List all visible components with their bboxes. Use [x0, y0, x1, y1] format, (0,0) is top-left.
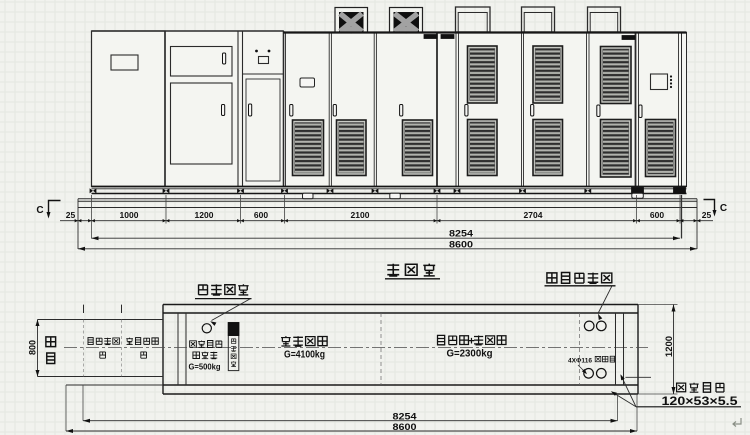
svg-text:8600: 8600: [393, 422, 417, 433]
svg-text:G=500kg: G=500kg: [189, 362, 221, 372]
svg-text:C: C: [36, 205, 43, 216]
svg-text:25: 25: [66, 210, 76, 220]
svg-text:8254: 8254: [393, 411, 418, 422]
svg-text:+: +: [468, 335, 474, 347]
svg-text:800: 800: [28, 340, 38, 355]
svg-text:2704: 2704: [524, 210, 543, 220]
svg-text:4XΦ116: 4XΦ116: [568, 357, 592, 364]
svg-text:8600: 8600: [449, 239, 473, 250]
svg-text:25: 25: [702, 210, 712, 220]
svg-text:G=2300kg: G=2300kg: [447, 348, 493, 360]
svg-text:600: 600: [254, 210, 268, 220]
svg-text:2100: 2100: [351, 210, 370, 220]
svg-text:1200: 1200: [195, 210, 214, 220]
svg-text:1000: 1000: [120, 210, 139, 220]
svg-text:600: 600: [650, 210, 664, 220]
svg-text:120×53×5.5: 120×53×5.5: [662, 394, 738, 408]
svg-text:1200: 1200: [664, 336, 675, 357]
svg-text:C: C: [720, 203, 727, 214]
svg-text:8254: 8254: [449, 229, 474, 240]
svg-text:G=4100kg: G=4100kg: [284, 349, 325, 361]
